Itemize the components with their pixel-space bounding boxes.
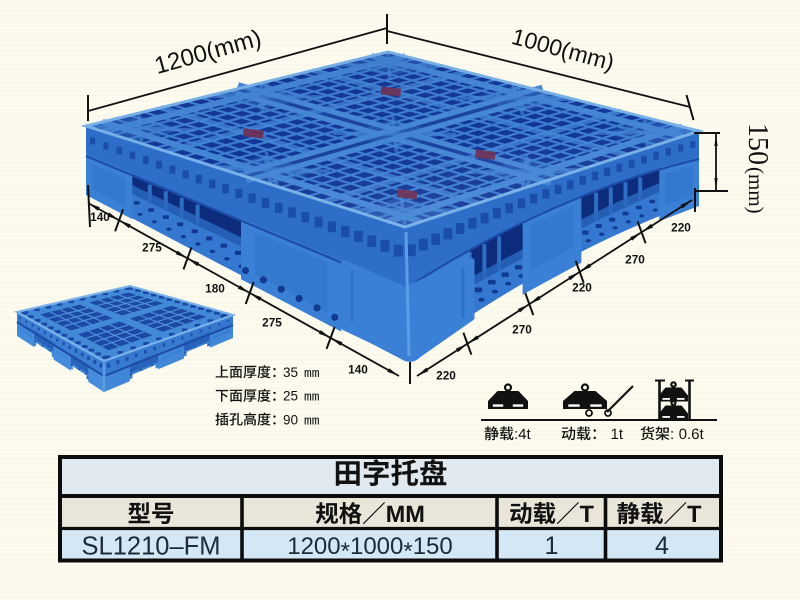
svg-text:270: 270 [512, 323, 532, 337]
svg-text:(mm): (mm) [744, 167, 768, 214]
svg-text:275: 275 [142, 241, 162, 255]
svg-text:SL1210–FM: SL1210–FM [82, 533, 221, 561]
svg-text:220: 220 [436, 369, 456, 383]
svg-text:mm: mm [304, 366, 320, 381]
svg-text:mm: mm [304, 390, 320, 405]
svg-text:4: 4 [655, 532, 669, 560]
svg-text:275: 275 [262, 316, 282, 330]
svg-text:90: 90 [283, 412, 298, 427]
svg-text:180: 180 [205, 282, 225, 296]
svg-text:1: 1 [545, 532, 559, 560]
svg-text:270: 270 [625, 253, 645, 267]
svg-text:140: 140 [90, 210, 110, 224]
svg-text:35: 35 [283, 365, 298, 380]
svg-text:140: 140 [348, 363, 368, 377]
svg-text:220: 220 [671, 221, 691, 235]
svg-text:220: 220 [572, 281, 592, 295]
svg-text:150: 150 [742, 123, 773, 165]
svg-text:25: 25 [283, 389, 298, 404]
svg-text:mm: mm [304, 413, 320, 428]
